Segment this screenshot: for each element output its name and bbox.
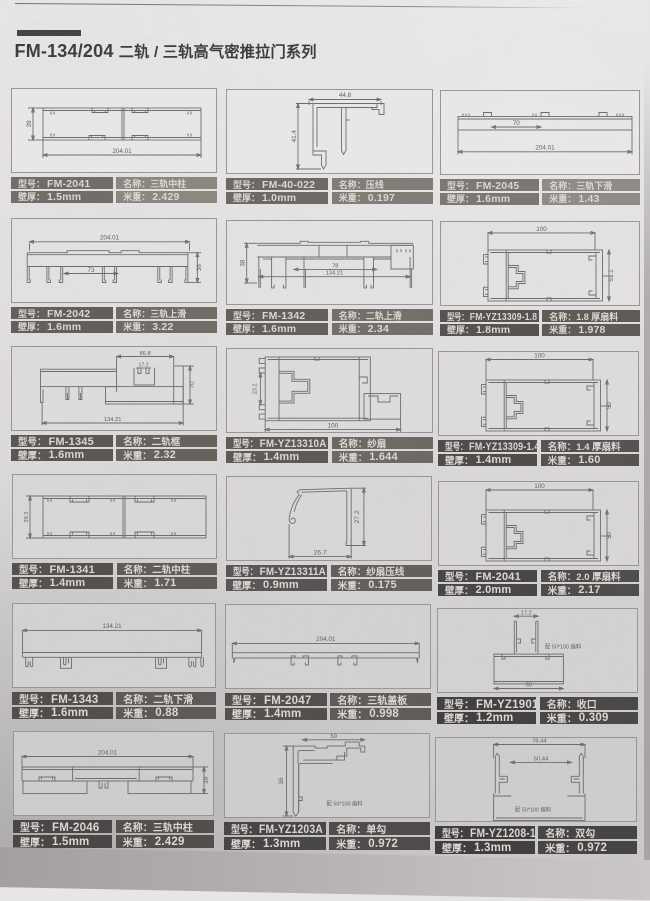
svg-text:204.01: 204.01: [535, 145, 555, 152]
svg-text:100: 100: [328, 422, 339, 429]
svg-text:配 50*100 扇料: 配 50*100 扇料: [515, 806, 552, 814]
svg-text:86.8: 86.8: [140, 351, 151, 357]
svg-text:51.1: 51.1: [608, 269, 615, 282]
svg-text:204.01: 204.01: [98, 749, 118, 756]
svg-text:100: 100: [534, 353, 545, 360]
svg-text:70: 70: [513, 120, 521, 127]
svg-text:27.2: 27.2: [353, 510, 360, 523]
svg-text:44.8: 44.8: [339, 92, 352, 99]
svg-text:204.01: 204.01: [100, 235, 120, 242]
svg-text:78: 78: [332, 263, 338, 269]
svg-text:38: 38: [240, 259, 247, 267]
svg-text:134.21: 134.21: [102, 623, 122, 630]
svg-text:134.21: 134.21: [326, 271, 344, 277]
svg-text:23.2: 23.2: [253, 383, 259, 394]
svg-text:39.3: 39.3: [24, 512, 30, 523]
svg-text:50: 50: [525, 683, 531, 689]
svg-text:50: 50: [606, 532, 613, 540]
svg-text:50.44: 50.44: [534, 756, 549, 762]
svg-text:134.21: 134.21: [104, 417, 122, 423]
svg-text:39: 39: [26, 120, 33, 128]
svg-text:204.01: 204.01: [112, 148, 132, 155]
svg-text:26.7: 26.7: [313, 549, 326, 556]
svg-text:41.4: 41.4: [291, 130, 298, 143]
svg-text:204.01: 204.01: [316, 636, 336, 643]
svg-text:50: 50: [606, 402, 613, 410]
svg-text:73: 73: [87, 267, 95, 274]
svg-text:70: 70: [189, 381, 196, 389]
svg-text:36: 36: [196, 264, 203, 272]
svg-text:100: 100: [536, 226, 547, 233]
svg-text:100: 100: [534, 483, 545, 490]
svg-text:配 50*100 扇料: 配 50*100 扇料: [327, 800, 364, 808]
svg-text:17.2: 17.2: [521, 610, 532, 616]
svg-text:配 50*100 扇料: 配 50*100 扇料: [545, 643, 582, 651]
svg-text:78.44: 78.44: [532, 739, 547, 745]
svg-text:39: 39: [203, 776, 210, 784]
svg-text:50: 50: [331, 734, 337, 740]
svg-text:36: 36: [278, 777, 285, 785]
